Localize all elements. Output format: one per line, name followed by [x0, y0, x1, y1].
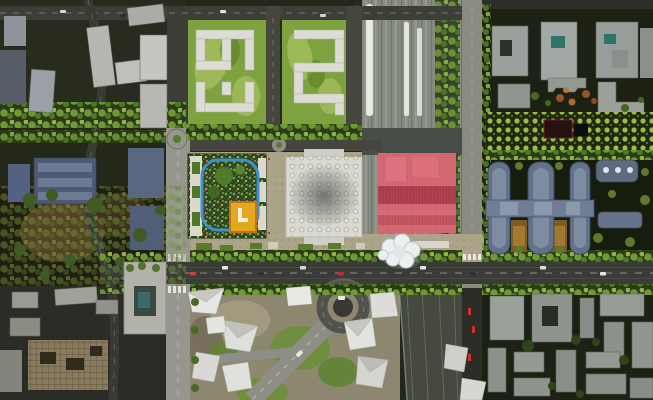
train [366, 4, 373, 116]
train [404, 22, 409, 116]
large-tree [215, 167, 233, 185]
building [140, 84, 167, 128]
waffle-roof-building [286, 149, 362, 245]
dark-red-building [544, 120, 572, 138]
aerial-masterplan-image [0, 0, 653, 400]
gallery-bar [598, 212, 642, 228]
building [140, 35, 167, 80]
building [600, 294, 644, 316]
station-building-highlight [378, 153, 456, 233]
building [29, 69, 56, 113]
masterplan-rendering [0, 0, 653, 400]
building [490, 296, 524, 340]
yellow-pavilion [230, 202, 256, 232]
building [498, 84, 530, 108]
park-street-east [346, 6, 362, 142]
building [0, 50, 26, 104]
train [417, 28, 422, 116]
building [4, 16, 26, 46]
roof-garden-block [188, 154, 270, 238]
orchard-grove [486, 112, 653, 150]
truck [338, 296, 345, 300]
building [541, 22, 577, 80]
building [574, 124, 588, 136]
